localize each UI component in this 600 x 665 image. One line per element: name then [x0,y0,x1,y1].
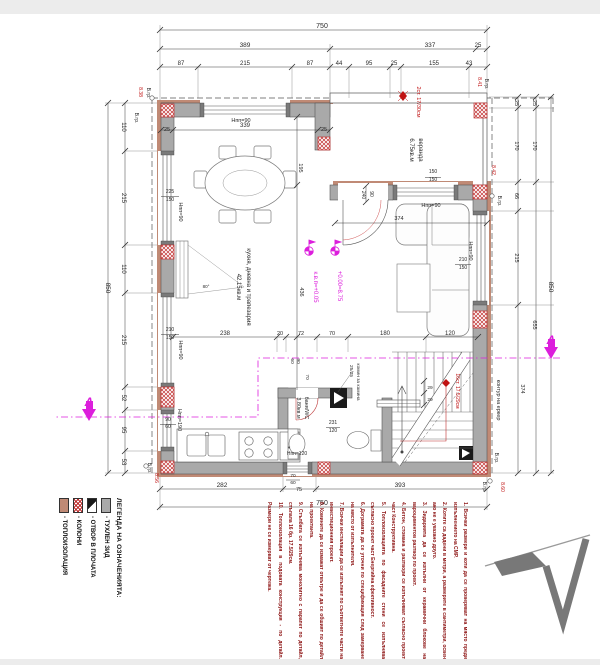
note-line: 2. Котите са дадени в метри, а размерите… [429,502,450,659]
plan-label: 87 [307,61,314,67]
plan-label: 87 [178,61,185,67]
plan-label: В.гр. [496,196,502,207]
plan-label: 42.15кв.м [235,274,241,301]
door-swings [296,200,388,420]
note-line: 7. Всички инсталации да се изпълнят по с… [326,502,347,659]
plan-label: 215 [120,335,126,346]
plan-label: В.гр. [133,113,139,124]
note-line: 1. Всички размери и коти да се проверява… [449,502,470,659]
note-line: 9. Стълбата се изпълнява монолитно с пар… [285,502,306,659]
plan-label: 110 [120,122,126,132]
plan-label: 25/25 [348,365,354,377]
plan-label: контур на еркер [495,380,501,421]
plan-label: 150 [429,169,438,175]
plan-label: 339 [240,123,251,129]
plan-label: 25 [321,127,327,133]
plan-label: к.в.п=+0.05 [312,271,318,303]
legend: ЛЕГЕНДА НА ОЗНАЧЕНИЯТА: - ТУХЛЕН ЗИД- ОТ… [46,498,122,640]
legend-item-columns: - КОЛОНИ [71,498,85,640]
plan-label: 70 [304,374,310,380]
bay-contour-dashed [152,98,553,476]
plan-label: 110 [120,264,126,274]
plan-label: 155 [429,61,440,67]
handrail [377,400,420,407]
plan-label: 655 [531,320,537,329]
plan-label: 60 [290,480,296,486]
section-marker-label: A [546,333,556,347]
plan-label: 195 [297,163,303,172]
slab-opening-swatch [87,498,97,513]
legend-item-label: - КОЛОНИ [75,516,81,545]
plan-label: 75 [296,487,302,493]
plan-label: 25 [475,43,482,49]
note-line: 4. Бетон, стомана и разтвори се изпълняв… [388,502,409,659]
plan-label: 72 [298,331,304,337]
plan-label: 70 [329,331,335,337]
plan-label: 389 [240,42,251,49]
legend-title: ЛЕГЕНДА НА ОЗНАЧЕНИЯТА: [115,498,122,640]
plan-label: 150 [166,197,175,203]
construction-notes: 1. Всички размери и коти да се проверява… [158,502,468,659]
plan-label: 170 [531,141,537,150]
plan-label: 170 [513,141,519,150]
plan-label: 393 [395,482,406,489]
note-line: 3. Зидарията да се изпълни от керамични … [408,502,429,659]
plan-label: 150 [459,265,468,271]
plan-label: 60 [289,358,295,364]
note-line: 10. Топлоизолация в подовата конструкция… [264,502,285,659]
plan-label: В.гр. [493,453,499,464]
plan-label: 95 [366,61,373,67]
plan-label: 8.60 [499,482,505,492]
plan-label: комин за камина [355,363,360,400]
legend-item-label: - ТОПЛОИЗОЛАЦИЯ [61,516,67,575]
plan-label: 29 [427,385,433,391]
plan-label: В.гр. [483,79,489,90]
elevation-symbols [305,240,341,255]
plan-label: Нпп=90 [177,202,183,221]
plan-label: 337 [425,42,436,49]
legend-item-slab-opening: - ОТВОР В ПЛОЧАТА [85,498,99,640]
plan-label: 52 [120,395,126,402]
plan-label: 374 [394,216,403,222]
note-line: 5. Топлоизолацията по фасадните стени се… [367,502,388,659]
plan-label: 120 [445,331,456,337]
plan-label: 3.80кв.м [295,397,301,419]
plan-label: 240 [360,191,366,200]
plan-label: 29 [427,397,433,403]
plan-label: 180 [380,331,391,337]
plan-label: 25 [164,127,170,133]
plan-label: баня/WC [303,397,309,420]
plan-label: 225 [166,189,175,195]
plan-label: 20 [277,331,283,337]
plan-label: 6.75кв.м [408,138,414,161]
plan-label: 60 [165,424,171,430]
plan-label: 215 [513,253,519,262]
plan-label: 90 [165,417,171,423]
plan-label: веранда [417,138,423,162]
plan-label: Нпп=90 [177,340,183,359]
plan-label: 90 [295,358,301,364]
plan-label: * [288,446,291,453]
plan-label: 215 [240,61,251,67]
plan-label: 150 [166,335,175,341]
plan-label: 238 [220,331,231,337]
insulation-swatch [59,498,69,513]
company-logo [480,530,595,655]
dining-table [194,146,296,223]
plan-label: 210 [166,327,175,333]
plan-label: 231 [329,420,338,426]
plan-label: +0.00=8.75 [336,271,342,302]
plan-label: кухня, дневна и трапезария [245,248,251,325]
plan-label: Нпп=90 [421,203,440,209]
plan-label: Нпп=90 [467,241,473,260]
section-marker-label: A [84,395,94,409]
columns-swatch [73,498,83,513]
plan-label: 53 [120,459,126,466]
plan-label: В.гр. [145,88,151,99]
floor-plan-page: { "page": {"background": "#ffffff", "ban… [0,0,600,665]
plan-label: 750 [316,23,328,30]
plan-label: 436 [298,287,304,296]
plan-label: 25 [531,100,537,106]
plan-label: 80° [203,284,210,289]
plan-label: 25 [391,61,398,67]
plan-label: 282 [217,482,228,489]
plan-label: В.гр. [481,482,487,493]
legend-item-brick-wall: - ТУХЛЕН ЗИД [99,498,113,640]
plan-label: 2ст. 17/30см [415,86,421,117]
plan-label: 8.42 [490,165,496,175]
plan-label: 210 [459,257,468,263]
note-line: 6. Дограмата да се уточни по спецификаци… [346,502,367,659]
section-arrow-right [544,347,558,359]
brick-wall-swatch [101,498,111,513]
legend-item-label: - ТУХЛЕН ЗИД [103,516,109,558]
plan-label: 850 [104,283,111,294]
plan-label: 43 [466,61,473,67]
section-arrow-left [82,409,96,421]
plan-label: 66 [513,193,519,199]
plan-label: 215 [120,193,126,204]
plan-label: 150 [429,177,438,183]
plan-label: 8.38 [137,87,143,97]
plan-label: 44 [336,61,343,67]
plan-label: 90 [368,191,374,197]
plan-label: 70 [290,473,296,479]
kitchen-counter [177,429,300,462]
plan-label: 120 [329,428,338,434]
plan-label: 8.56 [153,473,159,483]
plan-label: 850 [547,282,554,293]
legend-item-insulation: - ТОПЛОИЗОЛАЦИЯ [57,498,71,640]
coffee-table [397,264,430,312]
legend-item-label: - ОТВОР В ПЛОЧАТА [89,516,95,578]
note-line: 8. Комините да се измажат отвътре и да с… [305,502,326,659]
plan-label: 16ст. 17.5/29см [454,373,460,409]
radiator [176,241,244,298]
plan-label: В.гр. [146,463,152,474]
plan-label: 95 [120,427,126,434]
plan-label: Нпп=190 [176,409,182,431]
plan-label: 374 [519,384,525,393]
plan-label: 8.41 [476,77,482,87]
plan-label: 25 [513,100,519,106]
